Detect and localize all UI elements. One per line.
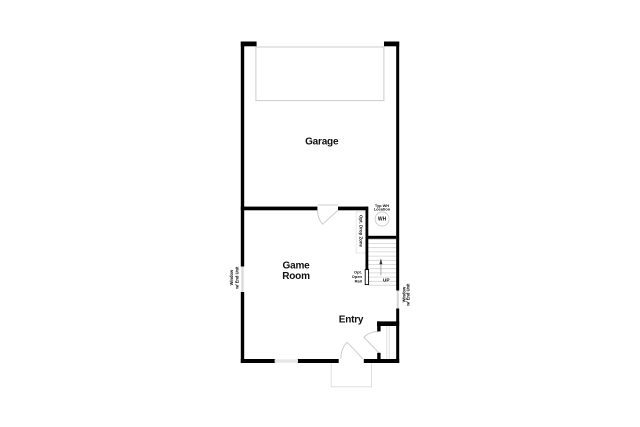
svg-text:Opt. Drop Zone: Opt. Drop Zone [358,215,363,248]
svg-text:w/ End Unit: w/ End Unit [234,266,239,290]
svg-text:Game: Game [283,261,311,272]
svg-text:Room: Room [282,271,310,282]
svg-text:Entry: Entry [339,315,364,326]
svg-text:UP: UP [383,278,390,284]
svg-text:Location: Location [374,207,391,212]
svg-text:WH: WH [378,217,387,223]
svg-text:w/ End Unit: w/ End Unit [406,283,411,307]
svg-text:Garage: Garage [305,136,339,147]
svg-text:Window: Window [229,269,234,285]
svg-text:Rail: Rail [355,279,362,284]
